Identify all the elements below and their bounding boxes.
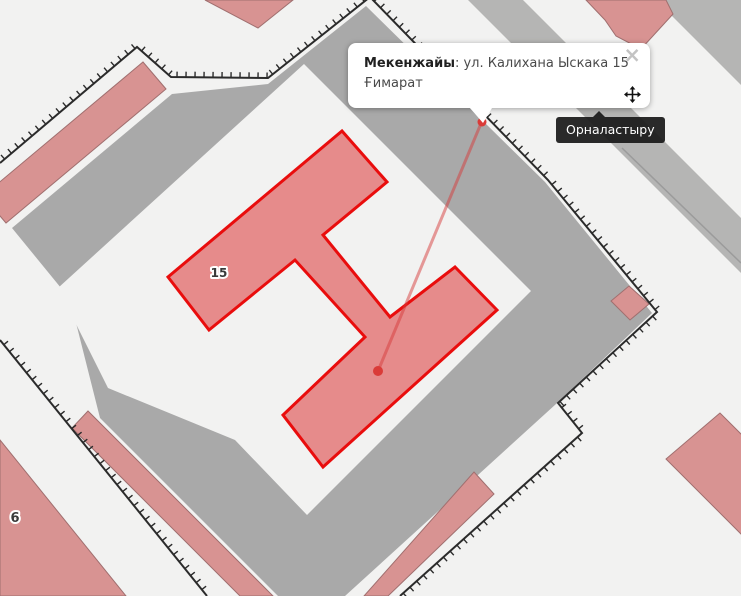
- move-icon[interactable]: [624, 86, 641, 103]
- popup-building-line: Ғимарат: [364, 74, 636, 94]
- building-top-triangle[interactable]: [205, 0, 293, 28]
- building-southeast[interactable]: [666, 413, 741, 539]
- building-northeast[interactable]: [586, 0, 673, 49]
- close-icon[interactable]: ×: [623, 45, 641, 66]
- building-number-6: 6: [10, 511, 19, 526]
- tooltip-arrow-icon: [593, 111, 605, 117]
- popup-address-line: Мекенжайы: ул. Калихана Ыскака 15: [364, 54, 636, 74]
- address-popup: × Мекенжайы: ул. Калихана Ыскака 15 Ғима…: [348, 43, 650, 108]
- address-street-value: ул. Калихана Ыскака 15: [463, 56, 628, 71]
- popup-tail: [470, 108, 492, 123]
- building-number-15: 15: [211, 266, 228, 280]
- placement-tooltip: Орналастыру: [556, 117, 665, 143]
- tooltip-label: Орналастыру: [566, 122, 655, 137]
- address-field-label: Мекенжайы: [364, 56, 455, 71]
- anchor-dot-building[interactable]: [373, 366, 383, 376]
- map-stage[interactable]: 156 Орналастыру × Мекенжайы: ул. Калихан…: [0, 0, 741, 596]
